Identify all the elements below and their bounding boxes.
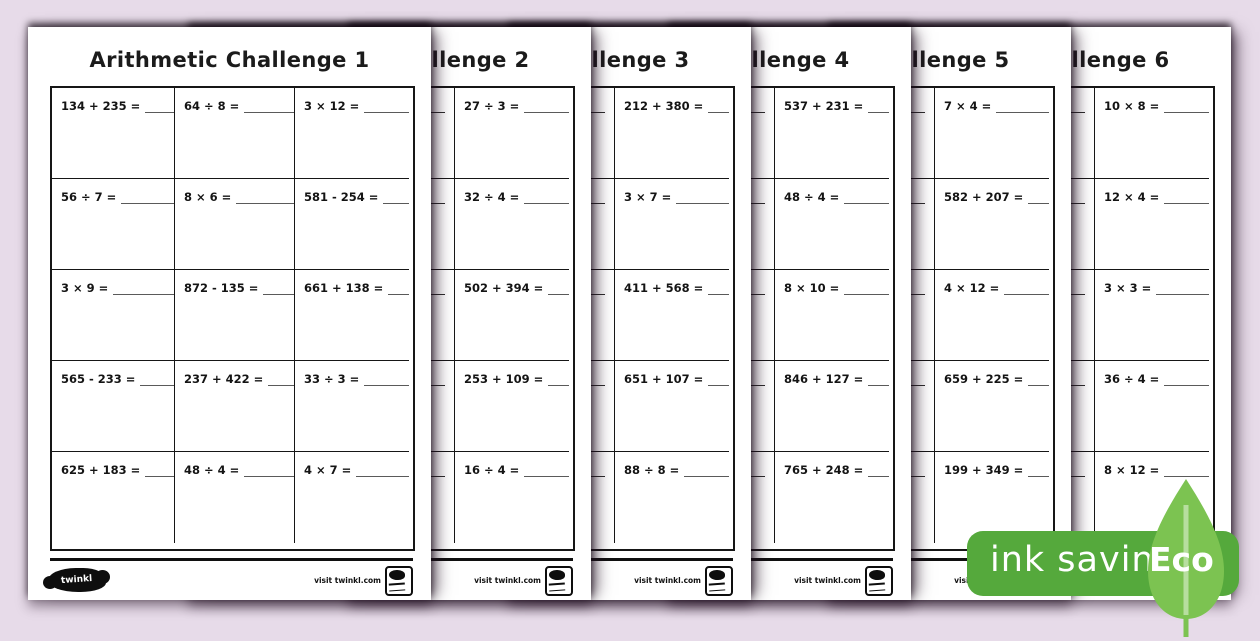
problem-text: 12 × 4 =	[1104, 190, 1159, 204]
problem-cell: 4 × 12 =	[935, 270, 1049, 361]
problem-text: 48 ÷ 4 =	[184, 463, 239, 477]
twinkl-stamp-icon	[385, 566, 413, 596]
visit-link-text: visit twinkl.com	[474, 576, 541, 585]
problem-cell: 253 + 109 =	[455, 361, 569, 452]
problem-text: 846 + 127 =	[784, 372, 863, 386]
problem-cell: 134 + 235 =	[52, 88, 175, 179]
answer-blank	[140, 372, 175, 386]
problem-text: 411 + 568 =	[624, 281, 703, 295]
answer-blank	[868, 99, 889, 113]
problem-text: 502 + 394 =	[464, 281, 543, 295]
twinkl-stamp-icon	[545, 566, 573, 596]
problem-text: 7 × 4 =	[944, 99, 991, 113]
problem-text: 659 + 225 =	[944, 372, 1023, 386]
problem-text: 582 + 207 =	[944, 190, 1023, 204]
page-title: Arithmetic Challenge 1	[28, 48, 431, 72]
problem-text: 253 + 109 =	[464, 372, 543, 386]
problem-text: 32 ÷ 4 =	[464, 190, 519, 204]
problem-text: 4 × 12 =	[944, 281, 999, 295]
problem-text: 565 - 233 =	[61, 372, 135, 386]
answer-blank	[708, 372, 729, 386]
problem-cell: 846 + 127 =	[775, 361, 889, 452]
problem-cell: 661 + 138 =	[295, 270, 409, 361]
problem-text: 4 × 7 =	[304, 463, 351, 477]
problem-cell: 411 + 568 =	[615, 270, 729, 361]
stamp-scribble-icon	[709, 582, 726, 591]
problem-cell: 32 ÷ 4 =	[455, 179, 569, 270]
answer-blank	[268, 372, 295, 386]
answer-blank	[524, 190, 569, 204]
problem-cell: 3 × 12 =	[295, 88, 409, 179]
problem-cell: 625 + 183 =	[52, 452, 175, 543]
problem-text: 212 + 380 =	[624, 99, 703, 113]
answer-blank	[1028, 372, 1049, 386]
answer-blank	[388, 281, 409, 295]
problem-text: 3 × 9 =	[61, 281, 108, 295]
problem-text: 237 + 422 =	[184, 372, 263, 386]
problem-text: 8 × 12 =	[1104, 463, 1159, 477]
problem-cell: 36 ÷ 4 =	[1095, 361, 1209, 452]
problem-cell: 581 - 254 =	[295, 179, 409, 270]
stamp-scribble-icon	[869, 582, 886, 591]
problem-text: 765 + 248 =	[784, 463, 863, 477]
problem-cell: 48 ÷ 4 =	[775, 179, 889, 270]
answer-blank	[996, 99, 1049, 113]
problem-cell: 765 + 248 =	[775, 452, 889, 543]
answer-blank	[868, 463, 889, 477]
answer-blank	[1028, 463, 1049, 477]
problem-cell: 659 + 225 =	[935, 361, 1049, 452]
problem-text: 10 × 8 =	[1104, 99, 1159, 113]
answer-blank	[844, 281, 889, 295]
problem-cell: 48 ÷ 4 =	[175, 452, 295, 543]
answer-blank	[244, 99, 295, 113]
answer-blank	[868, 372, 889, 386]
answer-blank	[708, 99, 729, 113]
problem-cell: 651 + 107 =	[615, 361, 729, 452]
problem-text: 48 ÷ 4 =	[784, 190, 839, 204]
twinkl-logo: twinkl	[48, 568, 106, 592]
stamp-scribble-icon	[389, 582, 406, 591]
answer-blank	[145, 99, 175, 113]
answer-blank	[1028, 190, 1049, 204]
problem-cell: 8 × 6 =	[175, 179, 295, 270]
problem-cell: 3 × 3 =	[1095, 270, 1209, 361]
problem-text: 56 ÷ 7 =	[61, 190, 116, 204]
twinkl-stamp-icon	[865, 566, 893, 596]
stamp-cloud-icon	[549, 570, 565, 580]
answer-blank	[145, 463, 175, 477]
footer-divider	[50, 558, 413, 561]
answer-blank	[364, 372, 409, 386]
problem-text: 3 × 3 =	[1104, 281, 1151, 295]
problem-text: 661 + 138 =	[304, 281, 383, 295]
answer-blank	[676, 190, 729, 204]
answer-blank	[548, 372, 569, 386]
visit-link-text: visit twinkl.com	[314, 576, 381, 585]
problem-text: 33 ÷ 3 =	[304, 372, 359, 386]
answer-blank	[708, 281, 729, 295]
problem-cell: 212 + 380 =	[615, 88, 729, 179]
problem-cell: 3 × 9 =	[52, 270, 175, 361]
stamp-scribble-icon	[549, 582, 566, 591]
problem-text: 625 + 183 =	[61, 463, 140, 477]
problem-cell: 64 ÷ 8 =	[175, 88, 295, 179]
problem-text: 3 × 7 =	[624, 190, 671, 204]
problem-cell: 88 ÷ 8 =	[615, 452, 729, 543]
problem-text: 3 × 12 =	[304, 99, 359, 113]
problem-cell: 8 × 10 =	[775, 270, 889, 361]
worksheet-page: Arithmetic Challenge 1 134 + 235 =64 ÷ 8…	[28, 27, 431, 600]
answer-blank	[1164, 190, 1209, 204]
problem-grid: 134 + 235 =64 ÷ 8 =3 × 12 =56 ÷ 7 =8 × 6…	[50, 86, 415, 551]
problem-text: 16 ÷ 4 =	[464, 463, 519, 477]
answer-blank	[356, 463, 409, 477]
problem-cell: 199 + 349 =	[935, 452, 1049, 543]
stamp-cloud-icon	[709, 570, 725, 580]
problem-text: 27 ÷ 3 =	[464, 99, 519, 113]
problem-cell: 10 × 8 =	[1095, 88, 1209, 179]
stamp-cloud-icon	[869, 570, 885, 580]
problem-text: 199 + 349 =	[944, 463, 1023, 477]
visit-link-text: visit twinkl.com	[794, 576, 861, 585]
eco-label: Eco	[1149, 540, 1214, 579]
problem-cell: 565 - 233 =	[52, 361, 175, 452]
problem-cell: 7 × 4 =	[935, 88, 1049, 179]
answer-blank	[548, 281, 569, 295]
twinkl-logo-label: twinkl	[61, 574, 93, 586]
problem-cell: 237 + 422 =	[175, 361, 295, 452]
answer-blank	[684, 463, 729, 477]
answer-blank	[1164, 99, 1209, 113]
answer-blank	[844, 190, 889, 204]
stamp-cloud-icon	[389, 570, 405, 580]
answer-blank	[1164, 372, 1209, 386]
answer-blank	[524, 463, 569, 477]
visit-link-text: visit twinkl.com	[634, 576, 701, 585]
answer-blank	[364, 99, 409, 113]
problem-text: 36 ÷ 4 =	[1104, 372, 1159, 386]
answer-blank	[113, 281, 175, 295]
problem-cell: 12 × 4 =	[1095, 179, 1209, 270]
problem-text: 872 - 135 =	[184, 281, 258, 295]
answer-blank	[244, 463, 295, 477]
problem-cell: 16 ÷ 4 =	[455, 452, 569, 543]
problem-text: 537 + 231 =	[784, 99, 863, 113]
answer-blank	[1164, 463, 1209, 477]
problem-text: 651 + 107 =	[624, 372, 703, 386]
answer-blank	[263, 281, 295, 295]
problem-text: 64 ÷ 8 =	[184, 99, 239, 113]
answer-blank	[383, 190, 409, 204]
problem-cell: 872 - 135 =	[175, 270, 295, 361]
answer-blank	[524, 99, 569, 113]
problem-cell: 582 + 207 =	[935, 179, 1049, 270]
problem-text: 8 × 10 =	[784, 281, 839, 295]
problem-text: 8 × 6 =	[184, 190, 231, 204]
answer-blank	[1156, 281, 1209, 295]
answer-blank	[1004, 281, 1049, 295]
problem-cell: 27 ÷ 3 =	[455, 88, 569, 179]
problem-cell: 537 + 231 =	[775, 88, 889, 179]
problem-text: 581 - 254 =	[304, 190, 378, 204]
twinkl-stamp-icon	[705, 566, 733, 596]
problem-cell: 3 × 7 =	[615, 179, 729, 270]
answer-blank	[121, 190, 175, 204]
problem-cell: 502 + 394 =	[455, 270, 569, 361]
answer-blank	[236, 190, 295, 204]
problem-cell: 33 ÷ 3 =	[295, 361, 409, 452]
problem-cell: 4 × 7 =	[295, 452, 409, 543]
problem-text: 134 + 235 =	[61, 99, 140, 113]
problem-text: 88 ÷ 8 =	[624, 463, 679, 477]
problem-cell: 56 ÷ 7 =	[52, 179, 175, 270]
